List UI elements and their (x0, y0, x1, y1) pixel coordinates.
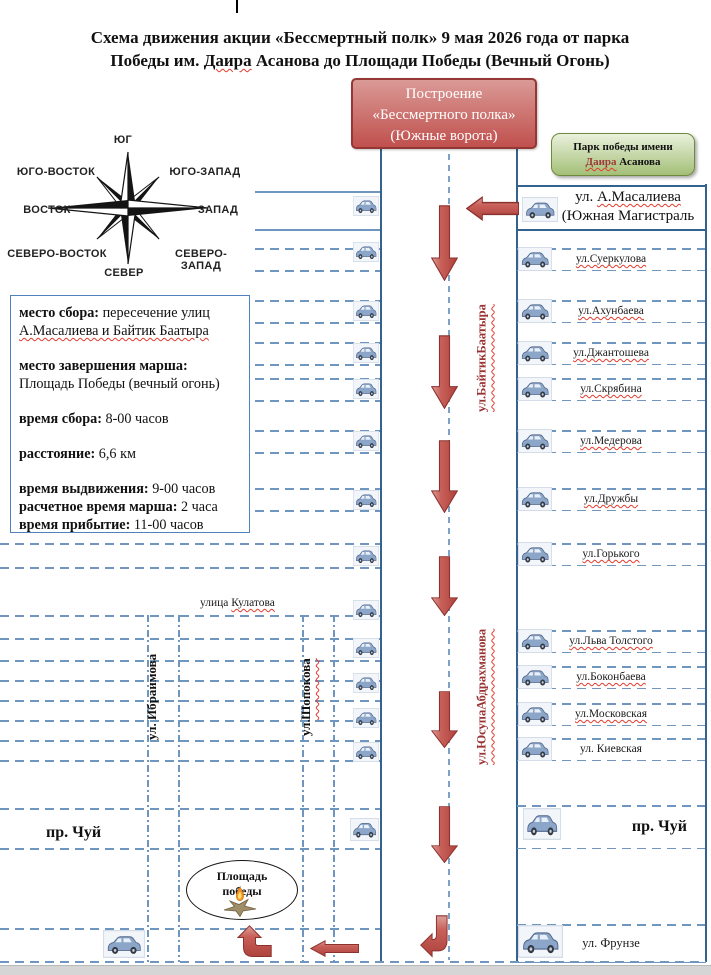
street-row-frunze: ул. Фрунзе (517, 924, 705, 962)
page-top-tick (236, 0, 238, 13)
route-left-line (380, 149, 382, 962)
car-icon (353, 379, 379, 399)
street-label: ул.Джантошева (573, 347, 649, 359)
street-label: ул.Скрябина (580, 383, 641, 395)
street-label: ул.Московская (575, 708, 647, 720)
car-icon (353, 742, 379, 762)
info-assembly-time: время сбора: 8-00 часов (19, 410, 245, 428)
assembly-box: Построение «Бессмертного полка» (Южные в… (351, 78, 537, 149)
street-row-dzhantosheva: ул.Джантошева (517, 342, 705, 364)
compass-label-left: ВОСТОК (18, 204, 76, 216)
frunze-label: ул. Фрунзе (582, 936, 640, 951)
left-street-line (0, 760, 380, 762)
car-icon (353, 546, 379, 566)
car-icon (522, 197, 558, 222)
victory-park-box: Парк победы имени Даира Асанова (551, 133, 695, 176)
compass-label-right: ЗАПАД (192, 204, 244, 216)
street-label: ул.Боконбаева (576, 671, 646, 683)
car-icon (353, 638, 379, 658)
left-street-line (0, 567, 380, 569)
route-arrow-down-6 (431, 806, 458, 863)
car-icon (518, 702, 552, 726)
right-section-edge-line (705, 184, 707, 962)
street-row-moskovskaya: ул.Московская (517, 703, 705, 725)
street-line (517, 962, 705, 964)
car-icon (518, 542, 552, 566)
title-line1: Схема движения акции «Бессмертный полк» … (45, 26, 675, 49)
street-row-bokonbaeva: ул.Боконбаева (517, 666, 705, 688)
car-icon (353, 242, 379, 262)
street-label-masalieva: ул. А.Масалиева (Южная Магистраль (552, 188, 704, 226)
baytik-baatyra-label: ул.БайтикБаатыра (469, 300, 495, 416)
info-arrival-time: время прибытие: 11-00 часов (19, 516, 245, 534)
car-icon (518, 737, 552, 761)
car-icon (353, 708, 379, 728)
march-info-box: место сбора: пересечение улиц А.Масалиев… (10, 295, 250, 533)
street-label: ул.Суеркулова (576, 253, 646, 265)
chuy-right-label: пр. Чуй (632, 818, 687, 836)
street-row-chuy-right: пр. Чуй (517, 805, 705, 848)
car-icon (353, 301, 379, 321)
info-finish-place: место завершения марша:Площадь Победы (в… (19, 357, 245, 393)
car-icon (353, 673, 379, 693)
left-street-line (0, 638, 380, 640)
left-street-line (0, 680, 380, 682)
title-line2: Победы им. Даира Асанова до Площади Побе… (45, 49, 675, 72)
car-icon (518, 341, 552, 365)
car-icon (518, 487, 552, 511)
chuy-left-bottom-line (0, 848, 380, 850)
car-icon (353, 343, 379, 363)
compass-label-bottom-left: СЕВЕРО-ВОСТОК (4, 248, 110, 260)
compass-label-top-right: ЮГО-ЗАПАД (166, 166, 244, 178)
shopokova-line-east (333, 615, 335, 962)
street-row-gorkogo: ул.Горького (517, 543, 705, 565)
route-arrow-down-2 (431, 335, 458, 409)
street-label: ул. Киевская (580, 743, 642, 755)
street-line (517, 805, 705, 807)
route-entry-arrow-left (466, 196, 519, 221)
page-bottom-edge (0, 965, 711, 975)
route-arrow-down-3 (431, 440, 458, 513)
eternal-flame-icon (222, 886, 258, 918)
car-icon (523, 808, 561, 840)
car-icon (518, 377, 552, 401)
car-icon (350, 818, 379, 841)
street-label: ул.Медерова (580, 435, 642, 447)
street-label: ул.Дружбы (584, 493, 638, 505)
street-row-druzhby: ул.Дружбы (517, 488, 705, 510)
route-arrow-down-1 (431, 205, 458, 281)
chuy-left-top-line (0, 808, 380, 810)
shopokova-label: ул.Шопокова (295, 648, 317, 746)
street-row-mederova: ул.Медерова (517, 430, 705, 452)
street-stub-line (255, 270, 380, 272)
ibraimova-line-east (178, 615, 180, 962)
info-start-time: время выдвижения: 9-00 часов (19, 480, 245, 498)
route-west-arrow (310, 940, 359, 957)
street-stub-line (255, 452, 380, 454)
street-row-suerkulova: ул.Суеркулова (517, 248, 705, 270)
ibraimova-label: ул. Ибраимова (141, 648, 163, 746)
street-stub-line (255, 400, 380, 402)
compass-label-top-left: ЮГО-ВОСТОК (12, 166, 100, 178)
masalieva-top-line-left (255, 191, 380, 193)
street-label: ул.Горького (582, 548, 639, 560)
car-icon (518, 299, 552, 323)
left-street-line (0, 700, 380, 702)
street-line (517, 848, 705, 850)
left-street-line (0, 720, 380, 722)
car-icon (518, 247, 552, 271)
left-street-line (0, 543, 380, 545)
left-street-line (0, 928, 380, 930)
street-label: ул.Ахунбаева (578, 305, 644, 317)
square-entry-arrow-up (237, 925, 272, 958)
left-street-line (0, 615, 380, 617)
route-arrow-down-5 (431, 691, 458, 748)
left-street-line (0, 660, 380, 662)
street-row-kievskaya: ул. Киевская (517, 738, 705, 760)
street-row-akhunbaeva: ул.Ахунбаева (517, 300, 705, 322)
left-street-line (0, 740, 380, 742)
street-row-lva-tolstogo: ул.Льва Толстого (517, 630, 705, 652)
compass-label-bottom-right: СЕВЕРО-ЗАПАД (156, 248, 246, 272)
page-title: Схема движения акции «Бессмертный полк» … (45, 26, 675, 72)
car-icon (518, 665, 552, 689)
chuy-left-label: пр. Чуй (46, 824, 101, 842)
car-icon (353, 196, 379, 216)
car-icon (518, 429, 552, 453)
route-turn-left-arrow (420, 915, 449, 959)
masalieva-bottom-line (516, 229, 706, 231)
street-label: ул.Льва Толстого (569, 635, 653, 647)
info-assembly-place: место сбора: пересечение улиц А.Масалиев… (19, 304, 245, 340)
compass-label-bottom: СЕВЕР (100, 267, 148, 279)
street-stub-line (255, 322, 380, 324)
street-stub-line (255, 510, 380, 512)
info-distance: расстояние: 6,6 км (19, 445, 245, 463)
car-icon (103, 930, 145, 958)
masalieva-bottom-line-left (255, 229, 380, 231)
car-icon (353, 431, 379, 451)
masalieva-top-line (516, 185, 706, 187)
info-march-duration: расчетное время марша: 2 часа (19, 498, 245, 516)
street-row-skryabina: ул.Скрябина (517, 378, 705, 400)
route-arrow-down-4 (431, 556, 458, 616)
car-icon (518, 629, 552, 653)
car-icon (353, 490, 379, 510)
car-icon (518, 925, 563, 958)
title-misspelled-word: Даира (204, 51, 252, 70)
street-stub-line (255, 364, 380, 366)
route-scheme-page: Схема движения акции «Бессмертный полк» … (0, 0, 711, 975)
compass-label-top: ЮГ (100, 134, 146, 146)
yusup-abdrakhmanov-label: ул.ЮсупаАбдрахманова (469, 623, 495, 771)
